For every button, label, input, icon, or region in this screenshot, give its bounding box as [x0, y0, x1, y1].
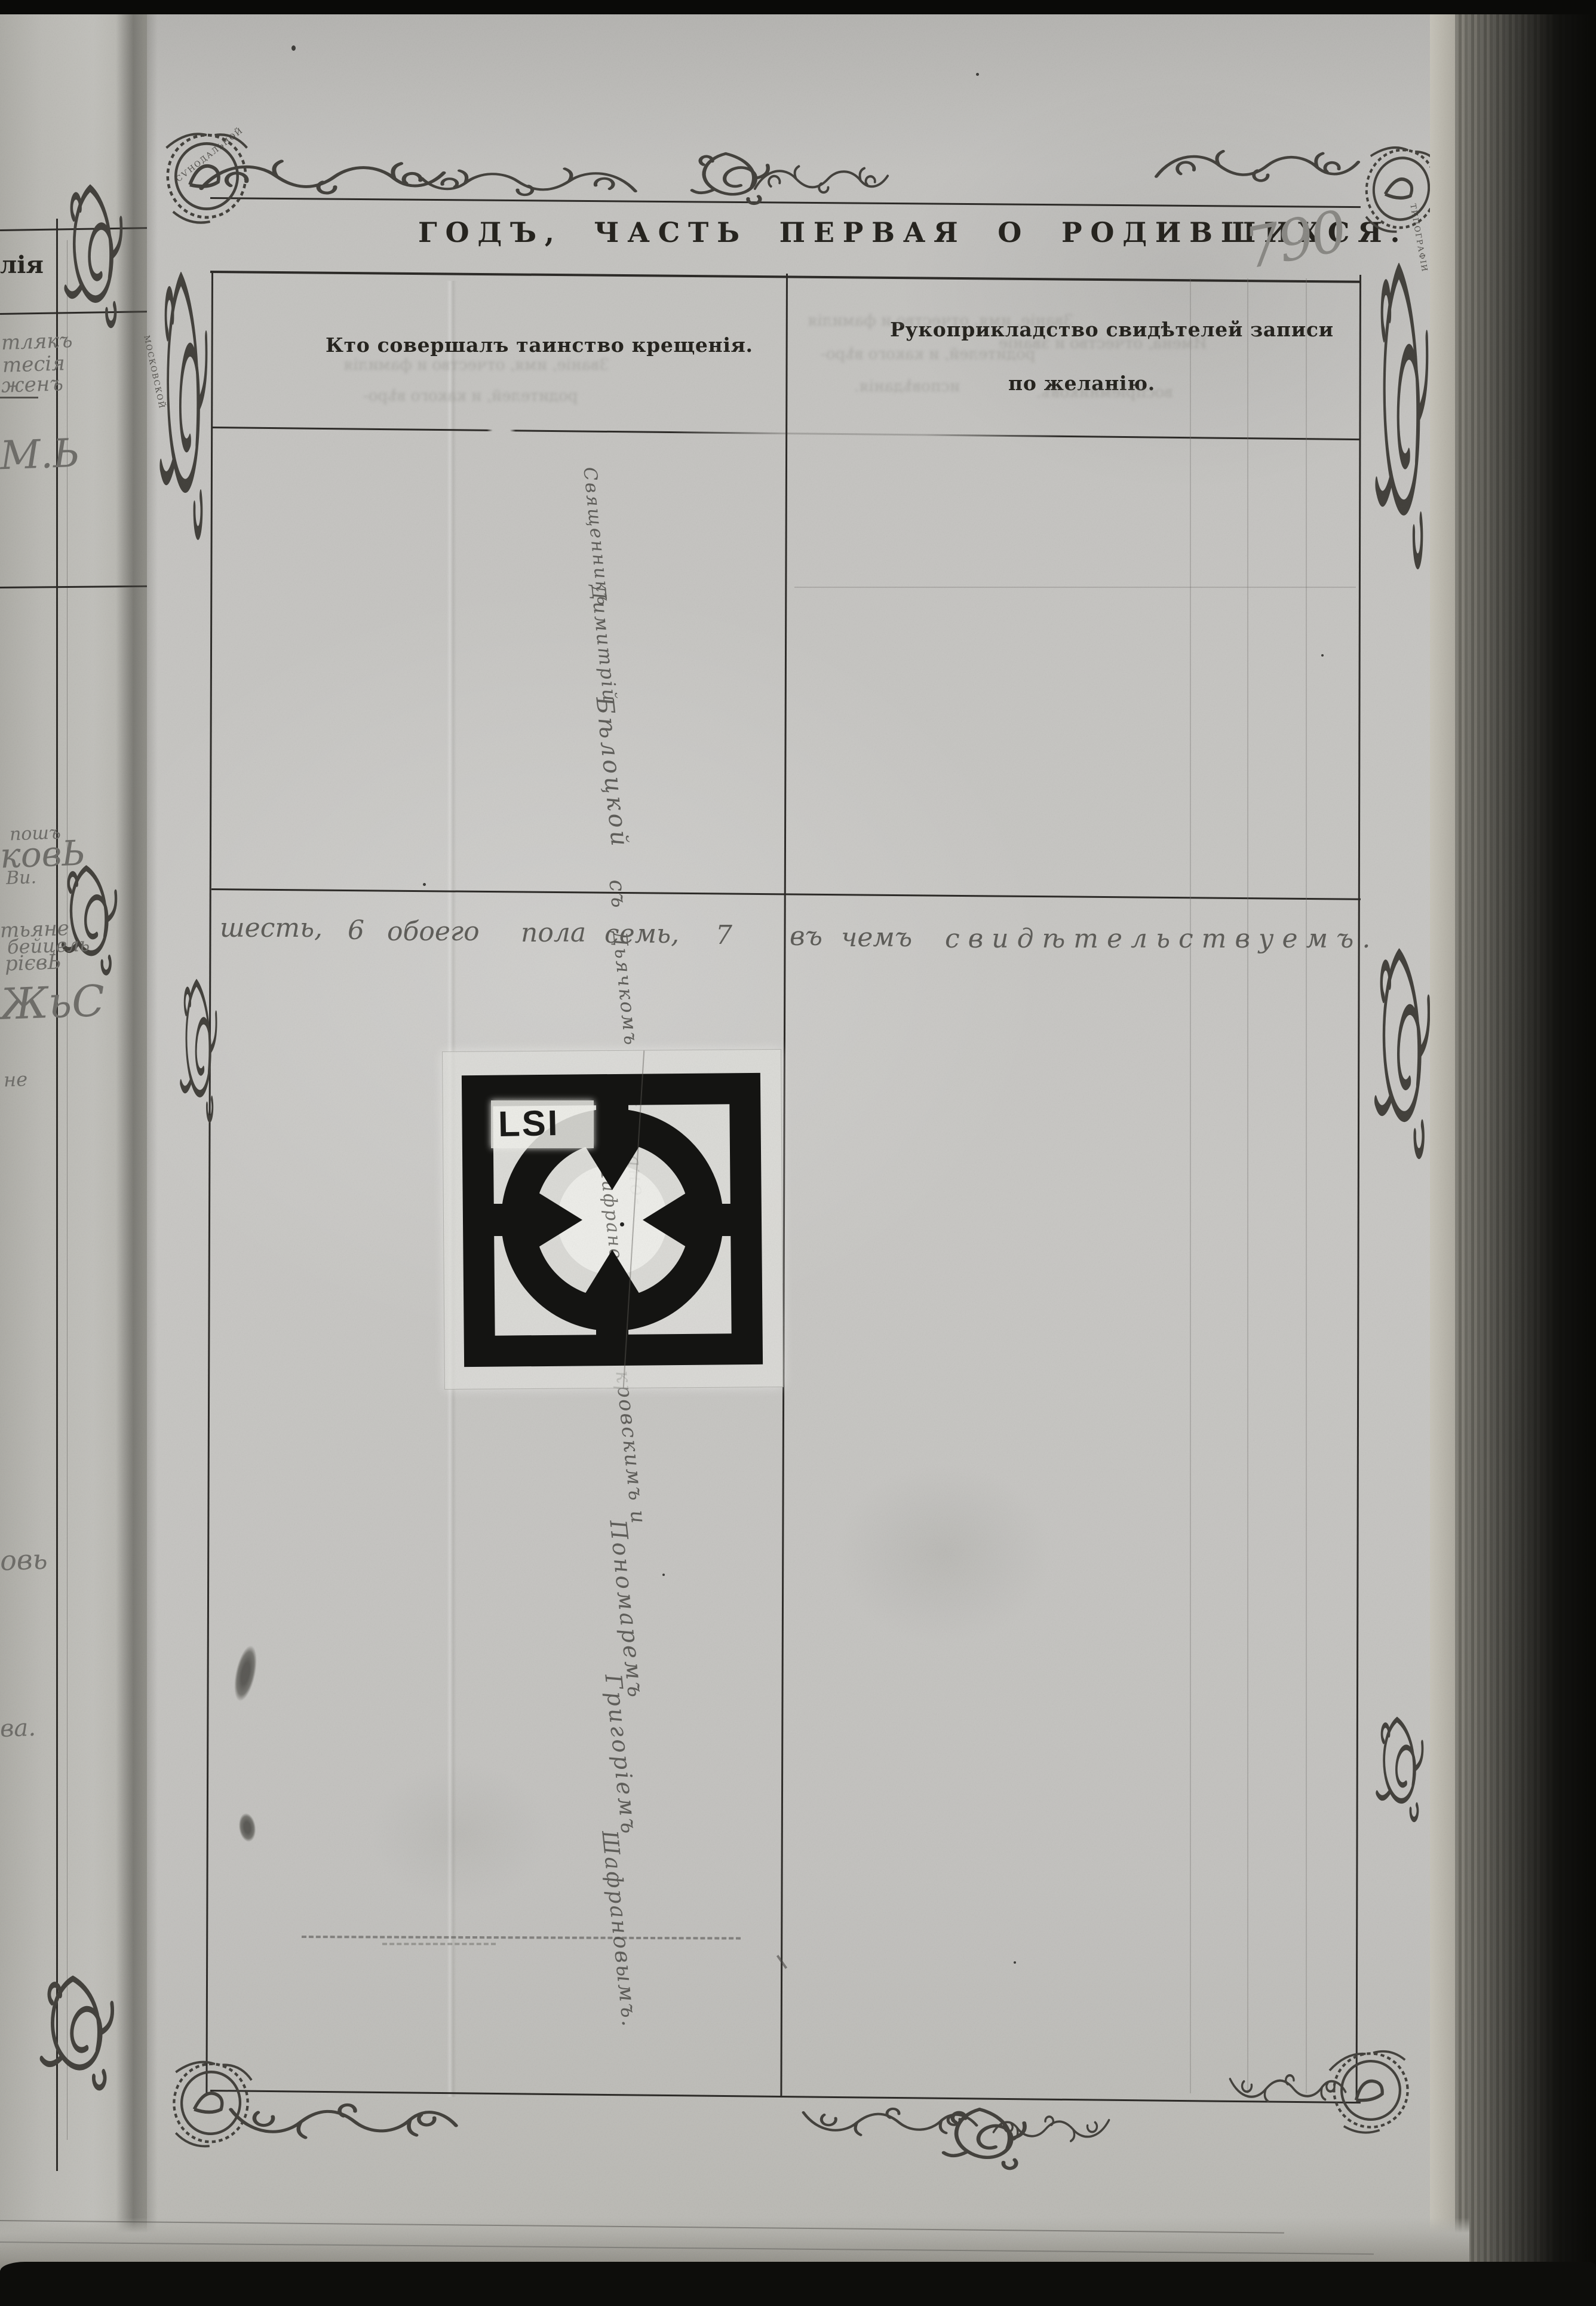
ghost-column-line	[1190, 278, 1191, 2093]
top-border-flourish	[1153, 147, 1362, 190]
ghost-text: Званіе, имя, отчество и фамилія	[808, 312, 1073, 330]
facing-printed-fragment: лія	[0, 251, 44, 279]
summary-word: 6	[348, 915, 364, 946]
scan-bottom-band	[0, 2262, 1596, 2306]
summary-word: шесть,	[220, 913, 323, 943]
signature-segment: съ	[604, 878, 631, 910]
summary-word: 7	[716, 920, 732, 950]
bottom-border-flourish	[992, 2109, 1111, 2145]
paper-speck	[976, 73, 979, 76]
top-border-flourish	[418, 165, 639, 203]
facing-border-flourish	[57, 173, 123, 352]
ghost-text: родителей, и какого вѣро-	[363, 387, 578, 405]
facing-script-fragment: ЖьС	[0, 976, 106, 1029]
facing-script-fragment: не	[3, 1068, 27, 1091]
ghost-row-line	[794, 587, 1356, 588]
facing-script-fragment: овь	[0, 1543, 48, 1577]
ghost-text: Званіе, имя, отчество и фамилія	[343, 356, 609, 374]
right-mid-flourish	[1368, 932, 1431, 1195]
facing-border-line	[56, 219, 58, 2171]
facing-script-fragment: рієвЬ	[4, 950, 62, 976]
scan-top-band	[0, 0, 1596, 14]
summary-word: свидѣтельствуемъ.	[945, 924, 1379, 954]
lsi-arrow-right	[532, 1189, 582, 1251]
left-border-flourish	[154, 251, 208, 585]
left-mid-flourish	[176, 968, 217, 1147]
lsi-arrow-left	[643, 1189, 693, 1251]
paper-speck	[423, 883, 426, 886]
ghost-text: воспріемниковъ.	[1036, 384, 1173, 401]
bottom-border-flourish	[1228, 2067, 1348, 2105]
dashed-scrawl	[382, 1943, 496, 1945]
summary-word: пола	[521, 918, 586, 948]
lsi-center-dot	[620, 1222, 624, 1226]
page-fore-edge	[1430, 0, 1457, 2306]
summary-word: обоего	[387, 916, 480, 947]
book-gutter-shadow	[116, 0, 158, 2306]
bottom-border-flourish	[227, 2095, 460, 2142]
lsi-arrow-up	[581, 1250, 643, 1300]
facing-script-fragment: М.Ь	[0, 430, 80, 479]
lsi-label: LSI	[498, 1102, 560, 1145]
facing-border-flourish	[31, 1967, 115, 2110]
facing-script-fragment: ва.	[0, 1714, 36, 1743]
summary-word: чемъ	[841, 922, 912, 953]
facing-script-fragment: женъ	[1, 372, 63, 398]
facing-border-line-faint	[67, 240, 67, 2140]
page-stack-edge	[1455, 0, 1596, 2306]
top-center-flourish	[753, 162, 890, 201]
ghost-column-line	[1306, 278, 1307, 2093]
paper-speck	[1014, 1961, 1016, 1964]
ghost-text: Имена, отчество и званіе	[999, 335, 1207, 352]
paper-speck	[1321, 654, 1324, 657]
ghost-text: исповѣданія.	[854, 378, 960, 395]
paper-speck	[291, 45, 296, 51]
right-border-flourish	[1369, 239, 1429, 621]
lsi-target: Шафрано- LSI	[443, 1050, 782, 1388]
top-border-flourish	[197, 157, 448, 203]
right-lower-flourish	[1370, 1709, 1424, 1840]
column1-header: Кто совершалъ таинство крещенія.	[326, 333, 753, 357]
ghost-column-line	[1247, 278, 1248, 2093]
paper-speck	[662, 1574, 665, 1576]
summary-word: въ	[790, 921, 822, 952]
scanned-register-page: лія тлякъ тесія женъ М.Ь пошъ ковЬ Ви. т…	[0, 0, 1596, 2306]
facing-script-fragment: Ви.	[5, 867, 36, 889]
